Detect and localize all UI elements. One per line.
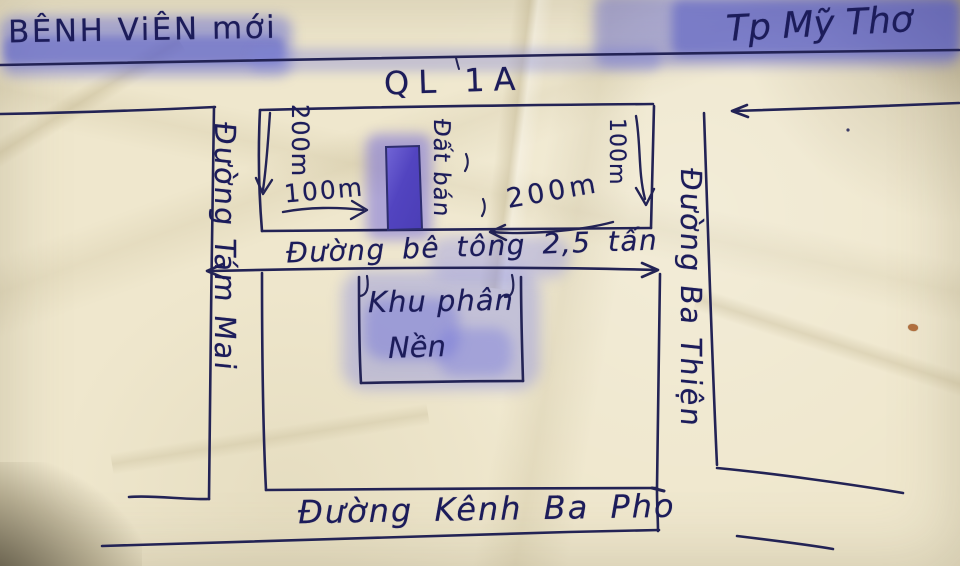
ink-dot	[846, 128, 849, 131]
land-sale-label: Đất bán	[428, 118, 454, 230]
subdivision-label-line2: Nền	[387, 329, 446, 365]
highway-label: QL 1A	[383, 60, 525, 103]
road-west-label: Đường Tám Mai	[208, 120, 242, 416]
subdivision-label-line1: Khu phân	[368, 283, 515, 320]
hospital-label: BÊNH ViÊN mới	[8, 10, 278, 51]
land-for-sale-parcel	[386, 146, 422, 230]
hand-drawn-land-map: BÊNH ViÊN mới Tp Mỹ Thơ QL 1A 200m 100m …	[0, 0, 960, 566]
road-east-label: Đường Ba Thiện	[674, 166, 708, 468]
dim-east-depth: 100m	[604, 118, 629, 213]
road-south-label: Đường Kênh Ba Pho	[298, 487, 676, 532]
